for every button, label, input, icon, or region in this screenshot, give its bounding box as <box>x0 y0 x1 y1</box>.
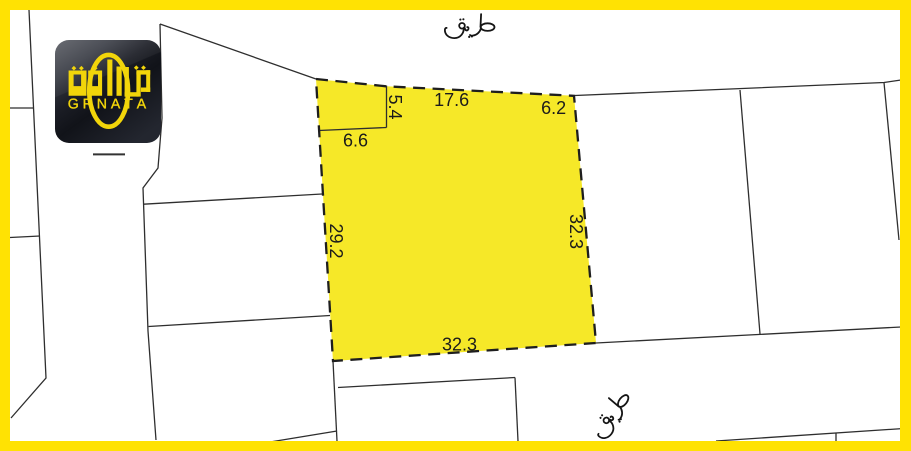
svg-text:32.3: 32.3 <box>566 214 586 249</box>
svg-text:17.6: 17.6 <box>434 90 469 110</box>
svg-text:29.2: 29.2 <box>326 223 346 258</box>
svg-text:32.3: 32.3 <box>442 335 477 355</box>
svg-text:6.6: 6.6 <box>343 130 368 150</box>
svg-text:5.4: 5.4 <box>385 94 405 119</box>
svg-text:6.2: 6.2 <box>541 98 566 118</box>
